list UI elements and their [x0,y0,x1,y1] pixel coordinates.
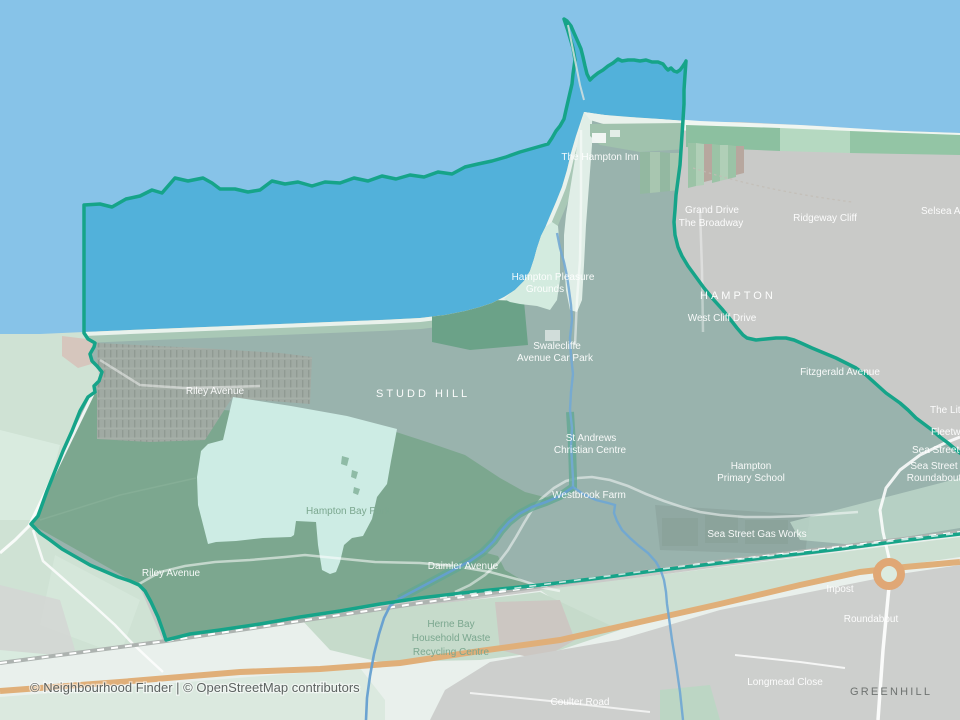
svg-text:Coulter Road: Coulter Road [551,697,610,708]
svg-text:St Andrews: St Andrews [566,433,617,444]
svg-text:Recycling Centre: Recycling Centre [413,647,490,658]
svg-text:Grand Drive: Grand Drive [685,205,739,216]
svg-text:HAMPTON: HAMPTON [700,290,776,302]
svg-text:Roundabout: Roundabout [844,614,899,625]
svg-text:Daimler Avenue: Daimler Avenue [428,561,499,572]
svg-text:Selsea Av: Selsea Av [921,206,960,217]
svg-text:The Litt: The Litt [930,405,960,416]
svg-text:Grounds: Grounds [526,284,564,295]
svg-text:Westbrook Farm: Westbrook Farm [552,490,626,501]
svg-text:The Hampton Inn: The Hampton Inn [561,152,638,163]
svg-text:Swalecliffe: Swalecliffe [533,341,581,352]
svg-text:West Cliff Drive: West Cliff Drive [688,313,757,324]
svg-text:Hampton: Hampton [731,461,772,472]
svg-text:Sea Street Gas Works: Sea Street Gas Works [707,529,806,540]
svg-text:Inpost: Inpost [826,584,853,595]
svg-text:STUDD HILL: STUDD HILL [376,388,470,400]
svg-text:Roundabout: Roundabout [907,473,960,484]
svg-text:© Neighbourhood Finder | © Ope: © Neighbourhood Finder | © OpenStreetMap… [30,680,360,695]
svg-text:Sea Street R: Sea Street R [912,445,960,456]
svg-text:Avenue Car Park: Avenue Car Park [517,353,594,364]
svg-text:GREENHILL: GREENHILL [850,686,932,698]
svg-text:Hampton Pleasure: Hampton Pleasure [512,272,595,283]
svg-text:Household Waste: Household Waste [412,633,491,644]
svg-text:Hampton Bay Park: Hampton Bay Park [306,506,391,517]
svg-text:The Broadway: The Broadway [679,218,743,229]
svg-text:Ridgeway Cliff: Ridgeway Cliff [793,213,857,224]
svg-text:Herne Bay: Herne Bay [427,619,474,630]
svg-text:Fleetw: Fleetw [931,427,960,438]
svg-text:Riley Avenue: Riley Avenue [142,568,201,579]
svg-text:Fitzgerald Avenue: Fitzgerald Avenue [800,367,880,378]
svg-text:Riley Avenue: Riley Avenue [186,386,245,397]
svg-text:Primary School: Primary School [717,473,785,484]
svg-text:Longmead Close: Longmead Close [747,677,823,688]
svg-text:Sea Street: Sea Street [910,461,957,472]
svg-text:Christian Centre: Christian Centre [554,445,627,456]
